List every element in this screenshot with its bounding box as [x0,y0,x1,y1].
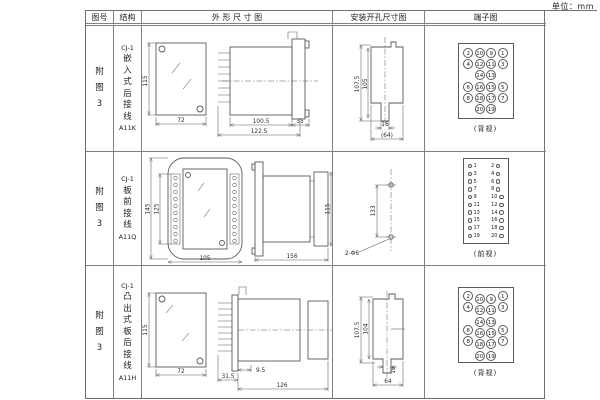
dim-label: 72 [177,118,185,124]
col-header-fig: 图号 [86,11,114,26]
terminal-pin: 14 [475,317,485,327]
dim-label: 31.5 [222,374,235,380]
terminal-pin: 13 [468,210,480,216]
terminal-pin: 10 [475,294,485,304]
row1-mounting-diagram: 107.5 105 16 (64) [333,26,425,152]
mounting-drawing-a11q: 133 2-Φ6 [333,153,424,265]
row3-fig-number: 附图3 [86,266,114,398]
terminal-pin: 19 [468,233,480,239]
dim-label: 16 [391,366,397,374]
terminal-caption: (背视) [474,368,497,378]
structure-char: 接 [123,351,132,360]
hole-note: 2-Φ6 [345,251,359,257]
terminal-pin: 20 [475,104,485,114]
dim-label: 107.5 [355,75,361,92]
dimensions: 107.5 104 16 64 [355,297,403,387]
terminal-pin: 12 [491,202,503,208]
structure-char: CJ-1 [121,44,134,53]
structure-char: 出 [123,305,132,314]
dim-label: 105 [363,78,369,89]
terminal-pin: 19 [486,104,496,114]
dimensions: 133 2-Φ6 [345,185,389,257]
terminal-pin: 12 [475,59,485,69]
terminal-pin: 13 [486,317,496,327]
fig-char: 3 [97,220,102,229]
front-view [156,43,206,115]
terminal-pin: 8 [463,336,473,346]
structure-char: 凸 [123,293,132,302]
structure-char: 后 [123,339,132,348]
structure-char: 后 [123,90,132,99]
terminal-pin: 5 [498,325,508,335]
fig-char: 3 [97,100,102,109]
structure-char: 接 [123,210,132,219]
fig-char: 附 [95,68,104,77]
row1-outline-diagram: 115 72 100.5 35 122.5 [142,26,333,152]
terminal-pin: 6 [463,82,473,92]
terminal-pin: 1 [498,291,508,301]
dim-label: 115 [326,203,332,214]
outline-drawing-a11h: 115 72 9.5 31.5 126 [142,267,332,397]
terminal-pin: 7 [468,186,480,192]
terminal-caption: (前视) [474,249,497,259]
structure-char: A11H [119,374,137,383]
terminal-pin: 15 [468,217,480,223]
fig-char: 附 [95,312,104,321]
structure-char: 式 [123,78,132,87]
terminal-pin: 8 [463,93,473,103]
terminal-pin: 2 [463,291,473,301]
dim-label: 126 [276,383,287,389]
structure-char: 式 [123,316,132,325]
top-rule-extension [545,10,597,11]
terminal-pin: 12 [475,305,485,315]
side-view [218,287,332,371]
terminal-pin: 20 [475,351,485,361]
dim-label: 16 [381,122,389,128]
terminal-caption: (背视) [474,124,497,134]
row2-terminal-diagram: 135791113151719 2468101214161820 (前视) [425,152,546,266]
structure-char: 接 [123,101,132,110]
row1-fig-number: 附图3 [86,26,114,152]
mounting-drawing-a11h: 107.5 104 16 64 [333,267,424,397]
dim-label: (64) [381,133,393,139]
dimensions: 107.5 105 16 (64) [355,45,403,141]
terminal-pin: 16 [491,217,503,223]
terminal-grid-rear: 2109141211314136161558181772019 [458,43,514,119]
cutout-profile [373,291,405,379]
structure-char: 线 [123,362,132,371]
terminal-pin: 7 [498,336,508,346]
structure-char: 板 [123,187,132,196]
dim-label: 107.5 [355,321,361,338]
terminal-pin: 1 [498,48,508,58]
structure-char: CJ-1 [121,282,134,291]
row2-fig-number: 附图3 [86,152,114,266]
dim-label: 156 [286,254,297,260]
cutout-profile [371,37,403,123]
fig-char: 附 [95,188,104,197]
terminal-pin: 17 [468,225,480,231]
terminal-pin: 18 [491,225,503,231]
structure-char: 前 [123,198,132,207]
dim-label: 115 [143,75,149,86]
terminal-pin: 2 [463,48,473,58]
front-view [156,293,206,367]
structure-char: A11K [119,124,136,133]
terminal-pin: 8 [491,186,503,192]
side-view [252,162,328,256]
dim-label: 64 [384,379,392,385]
terminal-pin: 10 [491,194,503,200]
dim-label: 105 [199,256,210,262]
structure-char: CJ-1 [121,175,134,184]
terminal-pin: 9 [486,294,496,304]
outline-drawing-a11k: 115 72 100.5 35 122.5 [142,27,332,151]
terminal-pin: 11 [486,305,496,315]
terminal-pin: 4 [463,302,473,312]
terminal-pin: 14 [491,210,503,216]
fig-char: 3 [97,344,102,353]
col-header-mounting: 安装开孔尺寸图 [333,11,425,26]
dimensions: 115 72 100.5 35 122.5 [143,43,309,137]
dim-label: 133 [371,205,377,216]
terminal-pin: 16 [475,328,485,338]
terminal-pin: 6 [491,179,503,185]
row2-structure: CJ-1板前接线A11Q [114,152,142,266]
terminal-pin: 14 [475,70,485,80]
terminal-pin: 3 [468,171,480,177]
col-header-structure: 结构 [114,11,142,26]
dimension-table: 图号 结构 外 形 尺 寸 图 安装开孔尺寸图 端子图 附图3 CJ-1嵌入式后… [85,10,545,399]
terminal-pin: 10 [475,48,485,58]
fig-char: 图 [95,328,104,337]
terminal-pin: 7 [498,93,508,103]
terminal-pin: 19 [486,351,496,361]
structure-char: 线 [123,221,132,230]
fig-char: 图 [95,84,104,93]
datasheet-page: 单位：mm 图号 结构 外 形 尺 寸 图 安装开孔尺寸图 端子图 附图3 CJ… [0,0,600,400]
terminal-pin: 4 [491,171,503,177]
terminal-pin: 2 [491,163,503,169]
structure-char: 线 [123,113,132,122]
dim-label: 100.5 [253,119,270,125]
dim-label: 104 [364,323,370,334]
outline-drawing-a11q: 145 125 105 156 115 [142,153,332,265]
terminal-pin: 5 [468,179,480,185]
row3-terminal-diagram: 2109141211314136161558181772019 (背视) [425,266,546,398]
terminal-pin: 11 [486,59,496,69]
structure-char: 嵌 [123,55,132,64]
terminal-pin: 9 [468,194,480,200]
col-header-terminal: 端子图 [425,11,546,26]
row2-outline-diagram: 145 125 105 156 115 [142,152,333,266]
terminal-pin: 17 [486,339,496,349]
terminal-pin: 15 [486,82,496,92]
terminal-pin: 17 [486,93,496,103]
structure-char: 板 [123,328,132,337]
terminal-pin: 6 [463,325,473,335]
terminal-pin: 9 [486,48,496,58]
terminal-pin: 20 [491,233,503,239]
terminal-pin: 3 [498,302,508,312]
terminal-pin: 1 [468,163,480,169]
dimensions: 145 125 105 156 115 [146,158,332,262]
dim-label: 72 [177,369,185,375]
terminal-pin: 4 [463,59,473,69]
front-view [168,158,242,259]
terminal-grid-rear-stud: 2109141211314136161558181772019 [458,287,514,363]
terminal-pin: 3 [498,59,508,69]
col-header-outline: 外 形 尺 寸 图 [142,11,333,26]
dim-label: 145 [146,203,152,214]
terminal-pin: 16 [475,82,485,92]
dim-label: 9.5 [256,368,266,374]
row1-terminal-diagram: 2109141211314136161558181772019 (背视) [425,26,546,152]
structure-char: A11Q [119,233,137,242]
structure-char: 入 [123,67,132,76]
dim-label: 115 [143,324,149,335]
mounting-drawing-a11k: 107.5 105 16 (64) [333,27,424,151]
terminal-pin: 13 [486,70,496,80]
row1-structure: CJ-1嵌入式后接线A11K [114,26,142,152]
row3-mounting-diagram: 107.5 104 16 64 [333,266,425,398]
fig-char: 图 [95,204,104,213]
terminal-pin: 11 [468,202,480,208]
side-view [218,32,318,119]
terminal-pin: 18 [475,339,485,349]
row2-mounting-diagram: 133 2-Φ6 [333,152,425,266]
row3-outline-diagram: 115 72 9.5 31.5 126 [142,266,333,398]
terminal-grid-front: 135791113151719 2468101214161820 [463,158,509,244]
terminal-pin: 15 [486,328,496,338]
dim-label: 125 [155,203,161,214]
row3-structure: CJ-1凸出式板后接线A11H [114,266,142,398]
dim-label: 122.5 [251,129,268,135]
holes [386,169,396,251]
terminal-pin: 18 [475,93,485,103]
terminal-pin: 5 [498,82,508,92]
